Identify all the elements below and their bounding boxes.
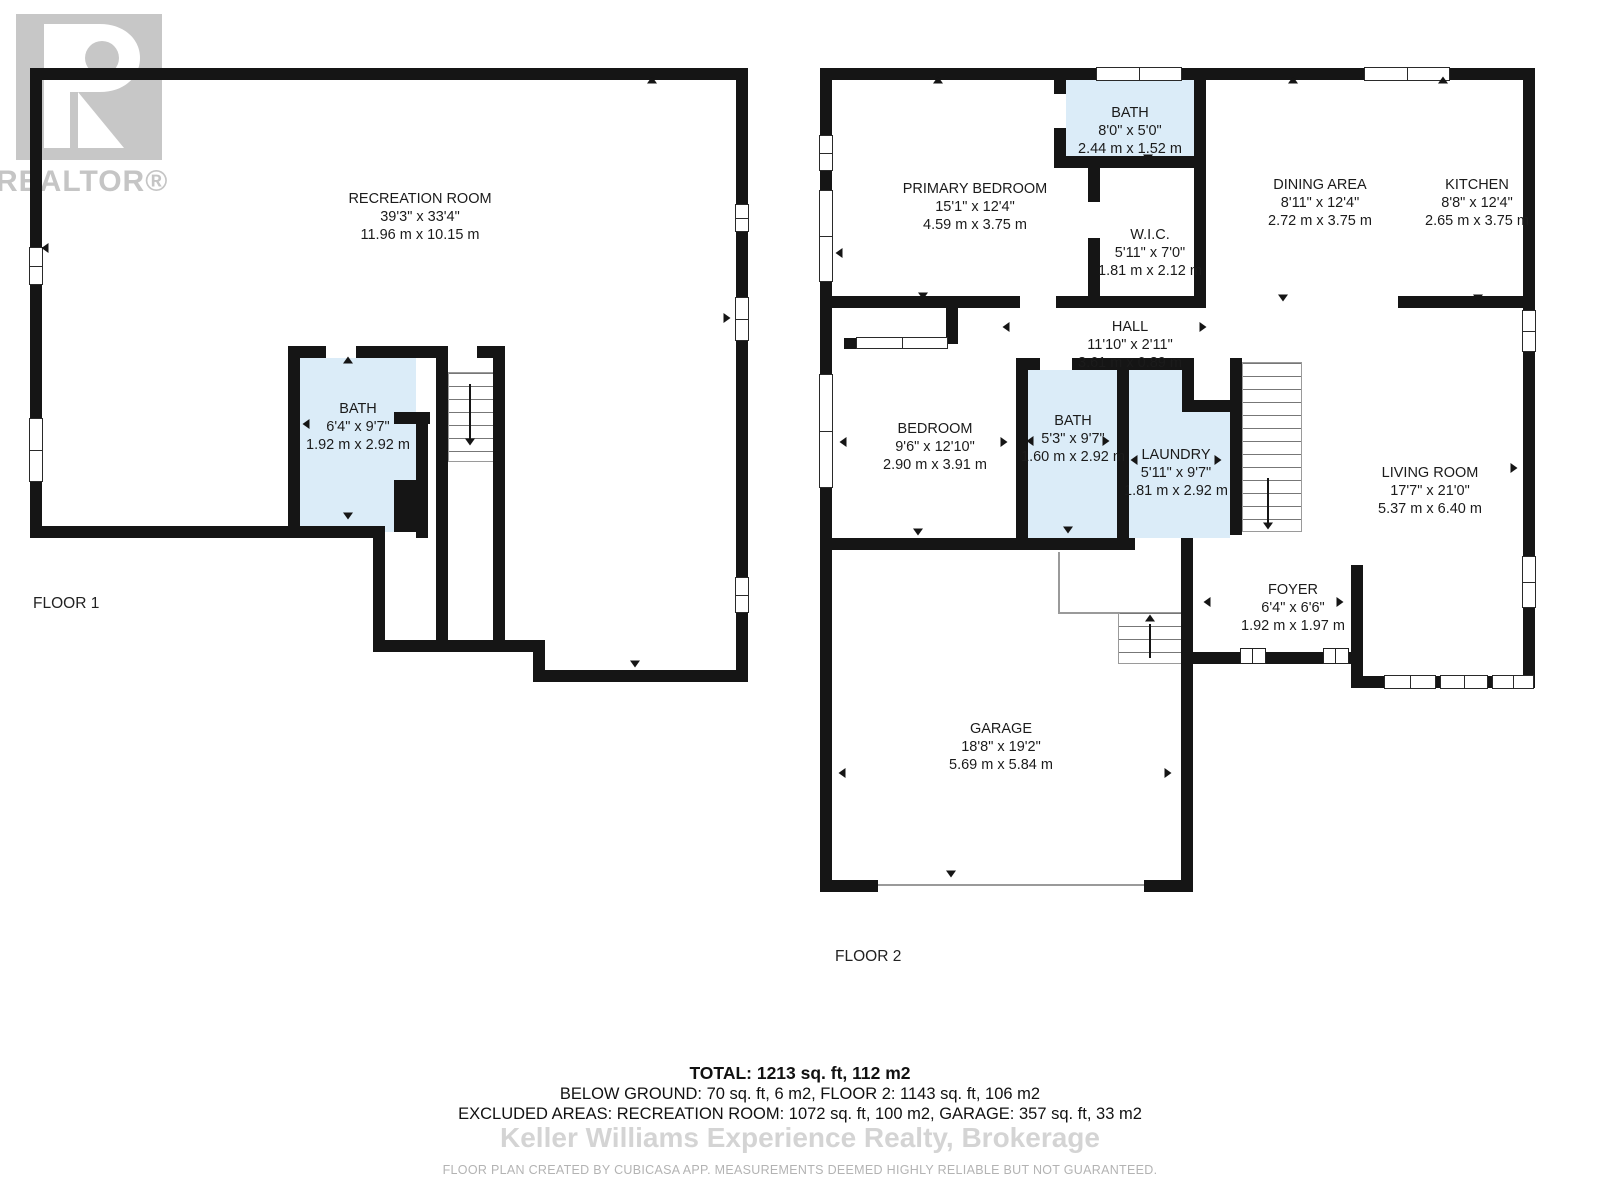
room-label-primary-bedroom: PRIMARY BEDROOM 15'1" x 12'4" 4.59 m x 3… [903,180,1048,234]
wall [30,526,385,538]
summary-excluded: EXCLUDED AREAS: RECREATION ROOM: 1072 sq… [0,1104,1600,1124]
room-dims-metric: 2.44 m x 1.52 m [1078,140,1182,158]
wall [1398,296,1535,308]
wall-marker [1001,437,1008,447]
window [735,297,749,341]
room-dims-metric: 11.96 m x 10.15 m [348,226,491,244]
room-label-foyer: FOYER 6'4" x 6'6" 1.92 m x 1.97 m [1241,581,1345,635]
room-label-dining-area: DINING AREA 8'11" x 12'4" 2.72 m x 3.75 … [1268,176,1372,230]
room-dims-imperial: 39'3" x 33'4" [348,208,491,226]
wall [493,346,505,648]
stair-arrow [1267,478,1269,524]
room-label-bath-floor1: BATH 6'4" x 9'7" 1.92 m x 2.92 m [306,400,410,454]
wall [820,538,1135,550]
room-dims-imperial: 5'11" x 9'7" [1124,464,1228,482]
wall [288,346,300,538]
room-dims-metric: 5.37 m x 6.40 m [1378,500,1482,518]
wall-marker [630,661,640,668]
wall-marker [1145,615,1155,622]
thin-line [1058,612,1120,614]
wall-marker [933,77,943,84]
room-label-bath-top: BATH 8'0" x 5'0" 2.44 m x 1.52 m [1078,104,1182,158]
room-name: RECREATION ROOM [348,190,491,208]
wall [1181,538,1193,892]
room-name: LIVING ROOM [1378,464,1482,482]
room-label-recreation-room: RECREATION ROOM 39'3" x 33'4" 11.96 m x … [348,190,491,244]
wall-marker [918,293,928,300]
room-dims-imperial: 8'11" x 12'4" [1268,194,1372,212]
summary-total: TOTAL: 1213 sq. ft, 112 m2 [0,1062,1600,1084]
window [856,337,948,349]
wall-marker [1263,523,1273,530]
wall [436,346,448,648]
wall-marker [1200,322,1207,332]
room-dims-imperial: 5'3" x 9'7" [1021,430,1125,448]
window [819,374,833,488]
room-dims-imperial: 15'1" x 12'4" [903,198,1048,216]
room-name: GARAGE [949,720,1053,738]
wall-marker [1511,463,1518,473]
wall-marker [343,513,353,520]
brokerage-watermark: Keller Williams Experience Realty, Broke… [0,1122,1600,1154]
room-name: BATH [1021,412,1125,430]
wall [373,526,385,652]
room-dims-imperial: 8'8" x 12'4" [1425,194,1529,212]
wall [477,346,505,358]
wall-marker [724,313,731,323]
window [1440,675,1488,689]
room-dims-imperial: 6'4" x 6'6" [1241,599,1345,617]
window [1522,556,1536,608]
wall-marker [465,439,475,446]
wall-marker [913,529,923,536]
floorplan-disclaimer: FLOOR PLAN CREATED BY CUBICASA APP. MEAS… [0,1163,1600,1177]
room-label-living-room: LIVING ROOM 17'7" x 21'0" 5.37 m x 6.40 … [1378,464,1482,518]
room-dims-metric: 1.92 m x 1.97 m [1241,617,1345,635]
room-name: BATH [306,400,410,418]
summary-below-ground: BELOW GROUND: 70 sq. ft, 6 m2, FLOOR 2: … [0,1084,1600,1104]
room-name: BATH [1078,104,1182,122]
wall-marker [417,419,424,429]
wall-marker [836,248,843,258]
wall-marker [1204,597,1211,607]
room-name: HALL [1078,318,1182,336]
room-dims-metric: 5.69 m x 5.84 m [949,756,1053,774]
room-label-hall: HALL 11'10" x 2'11" 3.61 m x 0.89 m [1078,318,1182,372]
room-dims-metric: 2.65 m x 3.75 m [1425,212,1529,230]
room-dims-imperial: 18'8" x 19'2" [949,738,1053,756]
stair-treads [1242,362,1302,532]
wall [1230,358,1242,535]
stair-arrow [1149,624,1151,658]
room-dims-imperial: 17'7" x 21'0" [1378,482,1482,500]
room-name: PRIMARY BEDROOM [903,180,1048,198]
wall-marker [647,77,657,84]
wall [1056,296,1206,308]
window [29,418,43,482]
room-dims-metric: 4.59 m x 3.75 m [903,216,1048,234]
room-label-kitchen: KITCHEN 8'8" x 12'4" 2.65 m x 3.75 m [1425,176,1529,230]
room-name: FOYER [1241,581,1345,599]
window [735,577,749,613]
wall [373,640,545,652]
window [735,204,749,232]
wall-marker [1165,768,1172,778]
room-label-wic: W.I.C. 5'11" x 7'0" 1.81 m x 2.12 m [1098,226,1202,280]
wall-marker [42,243,49,253]
area-summary: TOTAL: 1213 sq. ft, 112 m2 BELOW GROUND:… [0,1062,1600,1124]
room-dims-metric: 2.90 m x 3.91 m [883,456,987,474]
door-symbol [1323,648,1349,664]
wall [820,880,878,892]
wall-marker [1288,77,1298,84]
window [1492,675,1534,689]
window [1096,67,1182,81]
wall [1088,168,1100,202]
wall [414,346,448,358]
stair-arrow [469,384,471,440]
wall [1144,880,1193,892]
floor-plan-canvas: RECREATION ROOM 39'3" x 33'4" 11.96 m x … [0,0,1600,1200]
room-dims-imperial: 9'6" x 12'10" [883,438,987,456]
wall-marker [1063,527,1073,534]
wall-marker [1003,322,1010,332]
wall-marker [1438,77,1448,84]
room-dims-metric: 2.72 m x 3.75 m [1268,212,1372,230]
window [1522,310,1536,352]
room-name: LAUNDRY [1124,446,1228,464]
wall [30,68,748,80]
room-dims-metric: 1.60 m x 2.92 m [1021,448,1125,466]
room-name: BEDROOM [883,420,987,438]
floor2-label: FLOOR 2 [835,948,901,966]
floor1-label: FLOOR 1 [33,595,99,613]
wall [533,670,748,682]
window [819,190,833,282]
room-label-bedroom: BEDROOM 9'6" x 12'10" 2.90 m x 3.91 m [883,420,987,474]
wall [844,338,856,349]
wall-marker [343,357,353,364]
wall-marker [946,871,956,878]
wall [1351,565,1363,688]
room-dims-metric: 1.92 m x 2.92 m [306,436,410,454]
stair-treads [448,372,494,462]
thin-line [1058,552,1060,614]
wall-marker [1473,295,1483,302]
window [819,135,833,171]
room-name: W.I.C. [1098,226,1202,244]
room-name: DINING AREA [1268,176,1372,194]
door-symbol [1240,648,1266,664]
wall-marker [840,437,847,447]
room-dims-imperial: 11'10" x 2'11" [1078,336,1182,354]
room-label-bath2: BATH 5'3" x 9'7" 1.60 m x 2.92 m [1021,412,1125,466]
room-name: KITCHEN [1425,176,1529,194]
room-label-garage: GARAGE 18'8" x 19'2" 5.69 m x 5.84 m [949,720,1053,774]
room-dims-imperial: 6'4" x 9'7" [306,418,410,436]
room-dims-metric: 1.81 m x 2.12 m [1098,262,1202,280]
window [1384,675,1436,689]
wall-marker [839,768,846,778]
room-dims-metric: 1.81 m x 2.92 m [1124,482,1228,500]
thin-line [878,884,1144,886]
wall [394,480,428,532]
room-dims-imperial: 8'0" x 5'0" [1078,122,1182,140]
wall [1054,80,1066,94]
room-label-laundry: LAUNDRY 5'11" x 9'7" 1.81 m x 2.92 m [1124,446,1228,500]
room-dims-imperial: 5'11" x 7'0" [1098,244,1202,262]
room-dims-metric: 3.61 m x 0.89 m [1078,354,1182,372]
wall-marker [1278,295,1288,302]
